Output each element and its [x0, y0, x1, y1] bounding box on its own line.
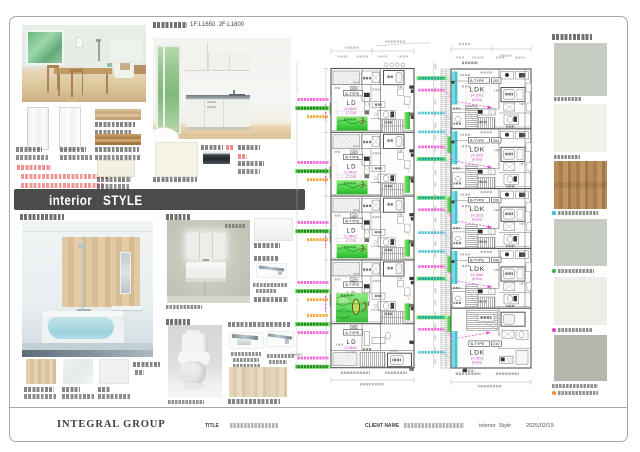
svg-text:LDK: LDK — [470, 87, 486, 94]
svg-text:(7.2Jo): (7.2Jo) — [346, 238, 356, 242]
svg-text:101: 101 — [351, 86, 356, 90]
svg-text:(8.9Jo): (8.9Jo) — [472, 217, 482, 221]
svg-text:103: 103 — [351, 214, 356, 218]
svg-text:(8.9Jo): (8.9Jo) — [472, 361, 482, 365]
svg-text:A-TYPE: A-TYPE — [345, 330, 359, 335]
svg-text:206: 206 — [493, 198, 500, 203]
svg-text:(7.2Jo): (7.2Jo) — [346, 175, 356, 179]
svg-text:204: 204 — [493, 138, 500, 143]
svg-text:B-TYPE: B-TYPE — [470, 198, 484, 203]
svg-text:202: 202 — [493, 78, 500, 83]
svg-text:102: 102 — [351, 150, 356, 154]
svg-text:(7.2Jo): (7.2Jo) — [346, 111, 356, 115]
svg-text:(8.9Jo): (8.9Jo) — [472, 277, 482, 281]
svg-text:B-TYPE: B-TYPE — [470, 258, 484, 263]
svg-text:(8.9Jo): (8.9Jo) — [472, 158, 482, 162]
svg-text:208: 208 — [493, 258, 500, 263]
svg-text:LD: LD — [347, 339, 357, 346]
svg-text:B-TYPE: B-TYPE — [470, 138, 484, 143]
svg-text:LD: LD — [347, 164, 357, 171]
svg-text:LD: LD — [347, 100, 357, 107]
svg-text:LDK: LDK — [470, 146, 486, 153]
svg-text:105: 105 — [351, 325, 356, 329]
svg-text:LDK: LDK — [470, 266, 486, 273]
svg-text:B-TYPE: B-TYPE — [470, 78, 484, 83]
svg-text:LDK: LDK — [470, 350, 486, 357]
svg-text:LD: LD — [347, 227, 357, 234]
svg-text:(8.9Jo): (8.9Jo) — [472, 98, 482, 102]
svg-text:210: 210 — [493, 341, 500, 346]
svg-text:B-TYPE: B-TYPE — [471, 341, 485, 346]
svg-text:LDK: LDK — [470, 206, 486, 213]
svg-text:104: 104 — [351, 278, 356, 282]
